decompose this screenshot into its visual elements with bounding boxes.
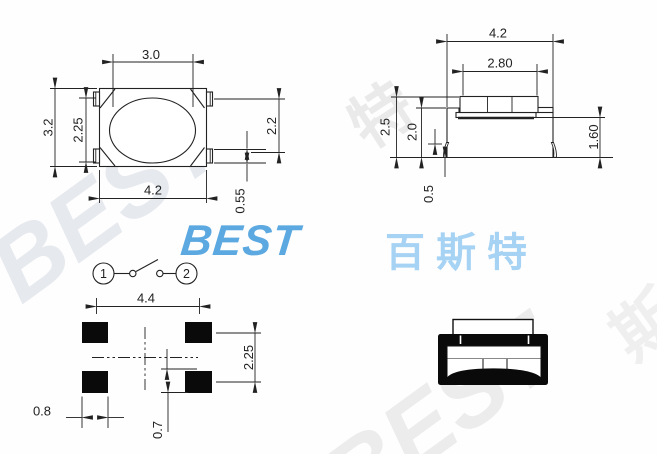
dimension-footprint-pitch-h: 4.4: [97, 291, 200, 315]
dimension-footprint-pad-height: 0.7: [150, 349, 197, 439]
lead-bottom-left: [94, 149, 100, 163]
dim-label-top-body-width: 4.2: [144, 183, 162, 198]
dimension-side-foot-height: 0.5: [421, 129, 445, 203]
switch-arm: [136, 260, 158, 272]
dim-label-footprint-pad-width: 0.8: [33, 404, 51, 419]
lead-bottom-right: [207, 149, 213, 163]
dim-label-top-button-height: 2.25: [71, 117, 86, 142]
dim-label-side-total-height: 2.5: [378, 118, 393, 136]
pad-top-left: [82, 322, 108, 343]
pad-bottom-right: [185, 371, 212, 393]
pad-top-right: [185, 322, 212, 343]
dim-label-top-body-height: 3.2: [41, 118, 56, 136]
dim-label-footprint-pitch-v: 2.25: [241, 345, 256, 370]
dimension-footprint-pad-width: 0.8: [33, 397, 124, 429]
dimension-footprint-pitch-v: 2.25: [216, 333, 261, 382]
pcb-footprint: 4.4 2.25 0.7 0.8: [33, 291, 261, 440]
dimension-top-body-width: 4.2: [100, 170, 207, 203]
dim-label-side-button-width: 2.80: [487, 56, 512, 71]
top-view: 3.0 3.2 2.25 4.2 2.2: [41, 47, 286, 214]
lead-top-right: [207, 92, 213, 106]
dimension-top-lead-span: 2.2: [214, 99, 285, 153]
dim-label-side-base-height: 1.60: [586, 124, 601, 149]
dimension-top-lead-thickness: 0.55: [214, 131, 266, 214]
drawing-page: BEST BEST 斯特 特 BEST 百斯特 3.0: [0, 0, 657, 454]
pad-bottom-left: [82, 371, 108, 393]
dim-label-footprint-pitch-h: 4.4: [137, 291, 155, 306]
actuator-button: [110, 98, 196, 163]
contact-left: [130, 270, 136, 276]
contact-right: [157, 270, 163, 276]
dim-label-footprint-pad-height: 0.7: [150, 421, 165, 439]
terminal-2-label: 2: [183, 267, 190, 281]
button-base-plate: [456, 113, 536, 118]
front-view: [438, 320, 548, 386]
dimension-side-button-width: 2.80: [463, 56, 537, 96]
dim-label-side-body-height: 2.0: [405, 123, 420, 141]
dimension-side-body-height: 2.0: [405, 108, 447, 157]
schematic-symbol: 1 2: [93, 260, 197, 285]
dim-label-side-body-width: 4.2: [489, 26, 507, 41]
technical-drawing-canvas: 3.0 3.2 2.25 4.2 2.2: [0, 0, 657, 454]
metal-cover-band: [447, 346, 541, 359]
dim-label-top-inner-width: 3.0: [142, 47, 160, 62]
dimension-top-button-height: 2.25: [71, 98, 97, 162]
dimension-top-body-height: 3.2: [41, 89, 98, 167]
dim-label-side-foot-height: 0.5: [421, 185, 436, 203]
terminal-1-label: 1: [100, 267, 107, 281]
actuator-button-side: [460, 97, 538, 113]
lead-top-left: [94, 92, 100, 106]
side-view: 4.2 2.80 2.5 2.0 1.60: [378, 26, 614, 204]
dim-label-top-lead-span: 2.2: [264, 117, 279, 135]
dim-label-top-lead-thickness: 0.55: [233, 188, 248, 213]
